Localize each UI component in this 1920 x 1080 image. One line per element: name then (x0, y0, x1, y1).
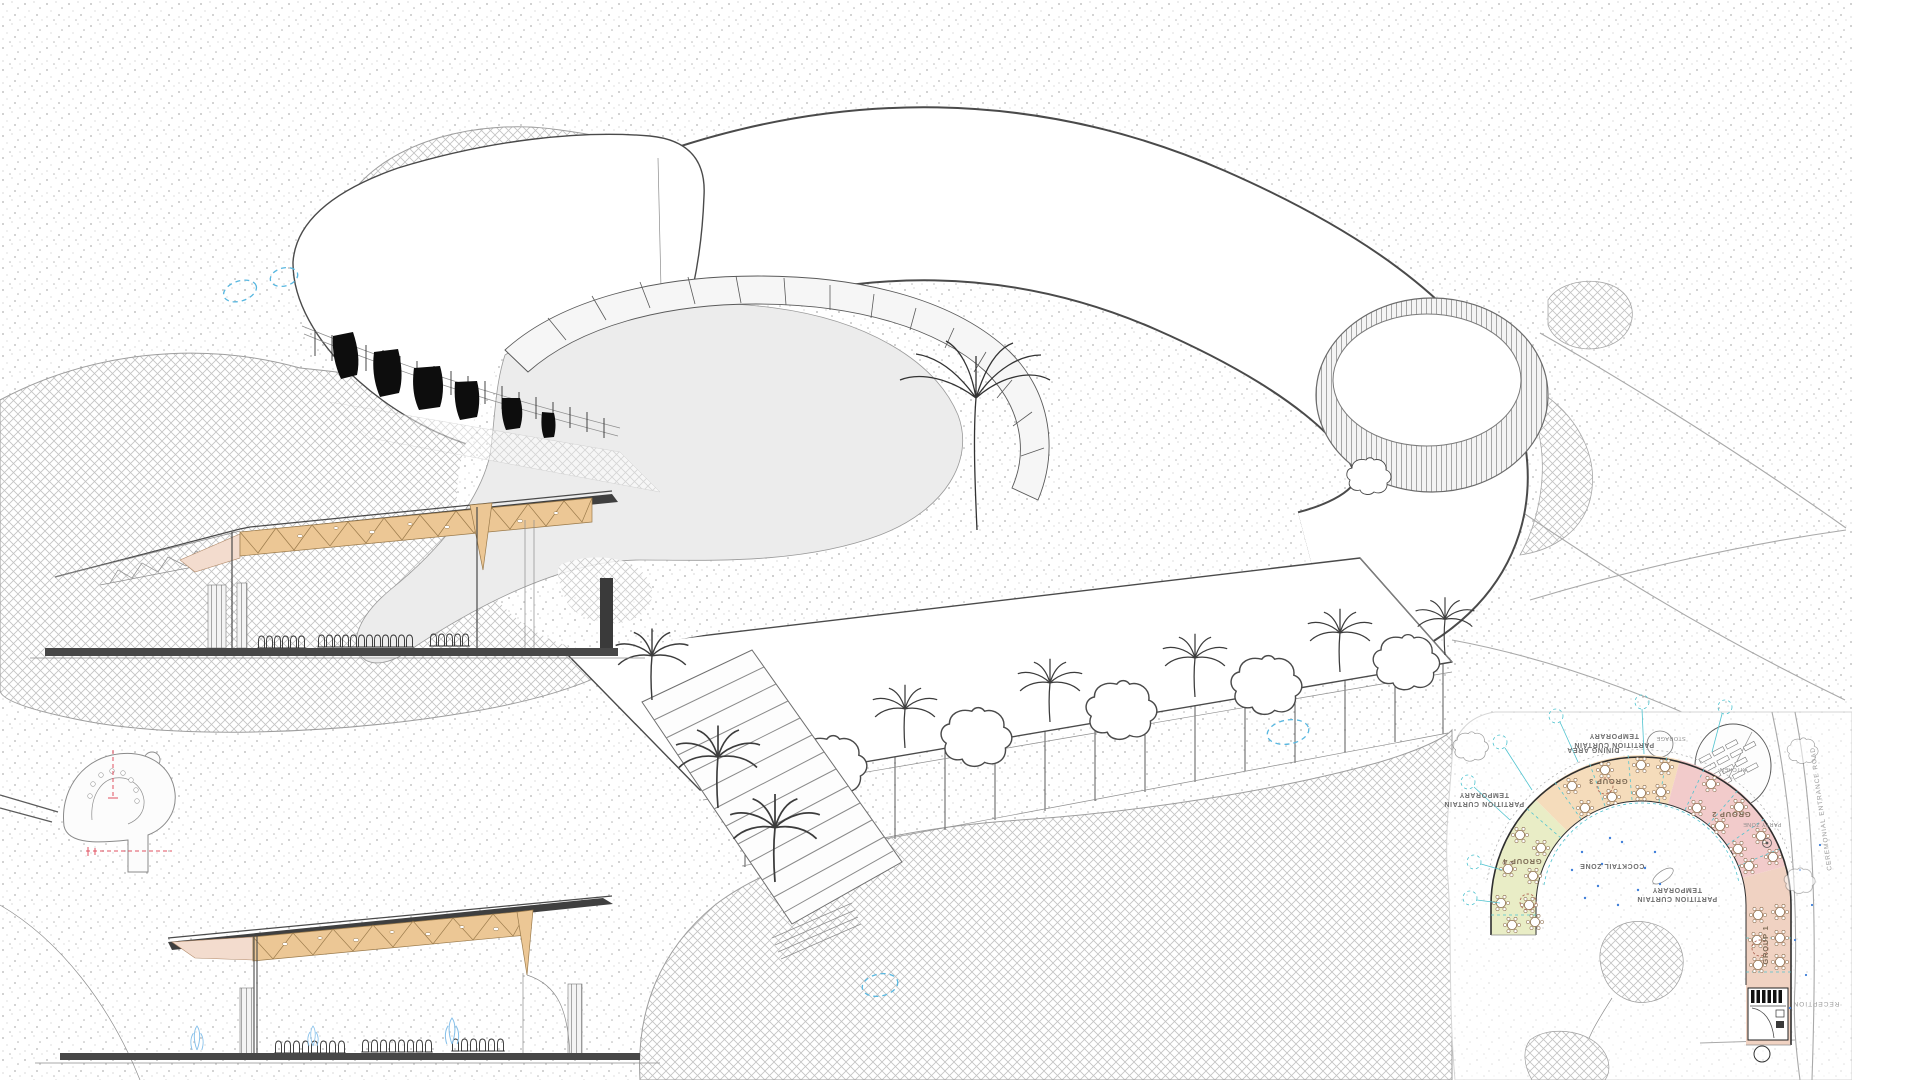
presentation-board: TEMPORARY PARTITION CURTAIN TEMPORARY PA… (0, 0, 1920, 1080)
label-partition-curtain-3b: PARTITION CURTAIN (1637, 895, 1717, 902)
label-party-zone: PARTY ZONE (1743, 821, 1782, 827)
label-reception: RECEPTION (1793, 1000, 1840, 1007)
label-group-3: GROUP 3 (1588, 777, 1627, 786)
ground-slab (45, 648, 618, 656)
page-margin (1852, 0, 1920, 1080)
label-group-4: GROUP 4 (1502, 857, 1541, 866)
label-group-2: GROUP 2 (1711, 810, 1750, 819)
label-partition-curtain-2a: TEMPORARY (1459, 791, 1509, 798)
label-partition-curtain-3a: TEMPORARY (1652, 886, 1702, 893)
label-kitchen: KITCHEN (1720, 766, 1747, 772)
courtyard-drum (1316, 298, 1548, 494)
ground-slab (60, 1053, 640, 1060)
crosshatch-patch-ne (1548, 281, 1632, 349)
label-partition-curtain-1a: TEMPORARY (1589, 732, 1639, 739)
seating-plan-inset: TEMPORARY PARTITION CURTAIN TEMPORARY PA… (1444, 695, 1852, 1080)
label-storage: STORAGE (1656, 735, 1686, 741)
drum-tree (1347, 458, 1391, 495)
label-partition-curtain-2b: PARTITION CURTAIN (1444, 800, 1524, 807)
label-group-1: GROUP 1 (1761, 925, 1770, 964)
label-dining-area: DINING AREA (1567, 746, 1620, 753)
architectural-drawing: TEMPORARY PARTITION CURTAIN TEMPORARY PA… (0, 0, 1920, 1080)
label-cocktail-zone: COCKTAIL ZONE (1580, 862, 1645, 869)
